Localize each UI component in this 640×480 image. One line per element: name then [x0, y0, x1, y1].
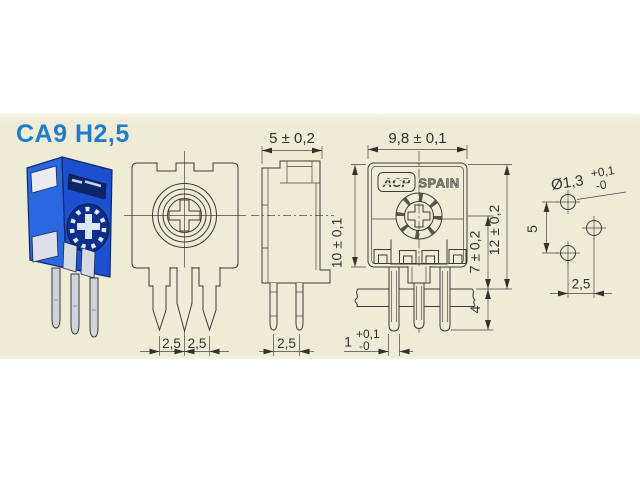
- spain-text: SPAIN: [418, 176, 459, 191]
- product-technical-drawing: CA9 H2,5: [0, 0, 640, 480]
- dim-hole-diameter: Ø1,3: [550, 172, 585, 194]
- dim-body-depth: 5 ± 0,2: [269, 130, 315, 147]
- dim-hole-horizontal-spacing: 2,5: [572, 277, 591, 292]
- dim-pin-thickness-tol-minus: -0: [359, 339, 370, 353]
- trimmer-photo: [27, 157, 112, 337]
- dim-pin-protrusion: 4: [467, 305, 483, 313]
- dim-pitch-right: 2,5: [188, 336, 207, 351]
- main-view-drawing: 9,8 ± 0,1 ACP SPAIN: [329, 130, 513, 356]
- dim-side-pitch: 2,5: [277, 336, 296, 351]
- dim-pitch-left: 2,5: [162, 336, 181, 351]
- acp-logo-text: ACP: [382, 175, 411, 190]
- dim-body-height: 10 ± 0,1: [329, 218, 345, 269]
- pcb-hole-layout: Ø1,3 +0,1 -0 5 2,5: [524, 163, 626, 298]
- side-view-drawing: 5 ± 0,2 2,5: [251, 130, 334, 356]
- dimension-drawing-canvas: 2,5 2,5 5 ± 0,2 2,5: [0, 0, 640, 480]
- dim-total-height: 12 ± 0,2: [486, 205, 502, 256]
- front-view-drawing: 2,5 2,5: [124, 151, 246, 356]
- dim-hole-vertical-spacing: 5: [524, 225, 540, 233]
- dim-body-width: 9,8 ± 0,1: [388, 130, 446, 147]
- dim-center-height: 7 ± 0,2: [467, 230, 483, 273]
- dim-pin-thickness: 1: [344, 334, 352, 350]
- dim-hole-tol-minus: -0: [595, 177, 608, 193]
